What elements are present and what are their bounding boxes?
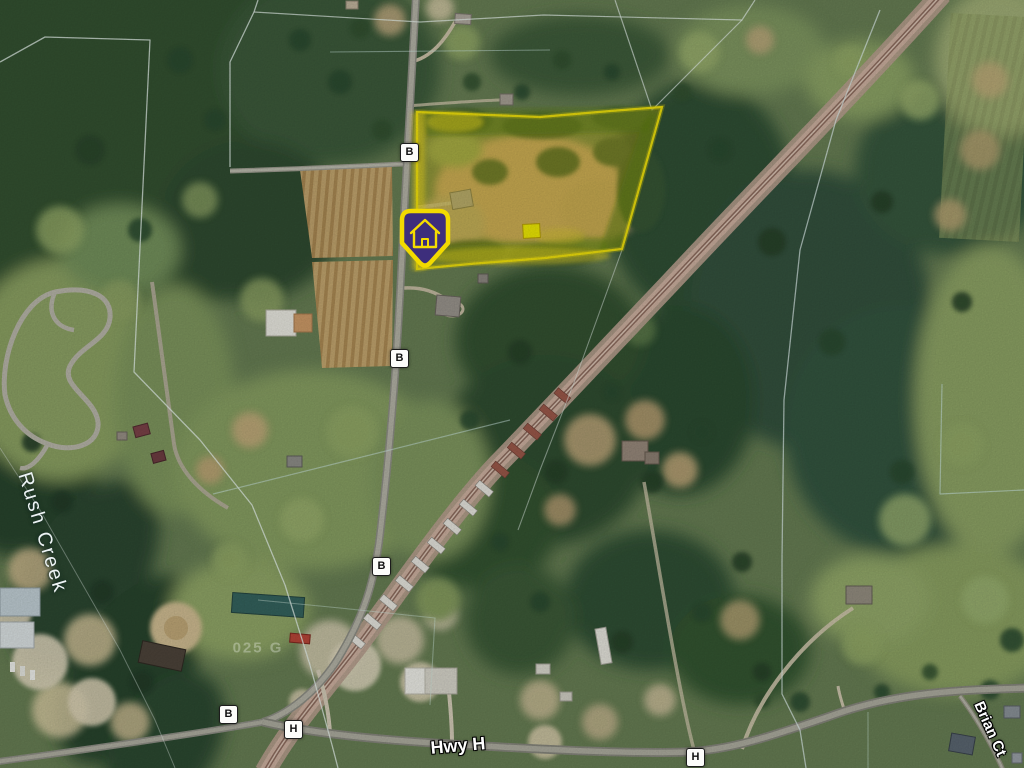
route-shield-b-north: B	[400, 143, 419, 162]
route-shield-h-junction: H	[284, 720, 303, 739]
route-shield-b-mid: B	[390, 349, 409, 368]
imagery-tint	[0, 0, 1024, 768]
imagery-watermark: 025 G	[233, 640, 284, 657]
satellite-map-viewport[interactable]: B B B B H H Rush Creek Hwy H Brian Ct 02…	[0, 0, 1024, 768]
route-shield-h-east: H	[686, 748, 705, 767]
satellite-imagery	[0, 0, 1024, 768]
route-shield-b-south: B	[372, 557, 391, 576]
route-shield-b-junction: B	[219, 705, 238, 724]
